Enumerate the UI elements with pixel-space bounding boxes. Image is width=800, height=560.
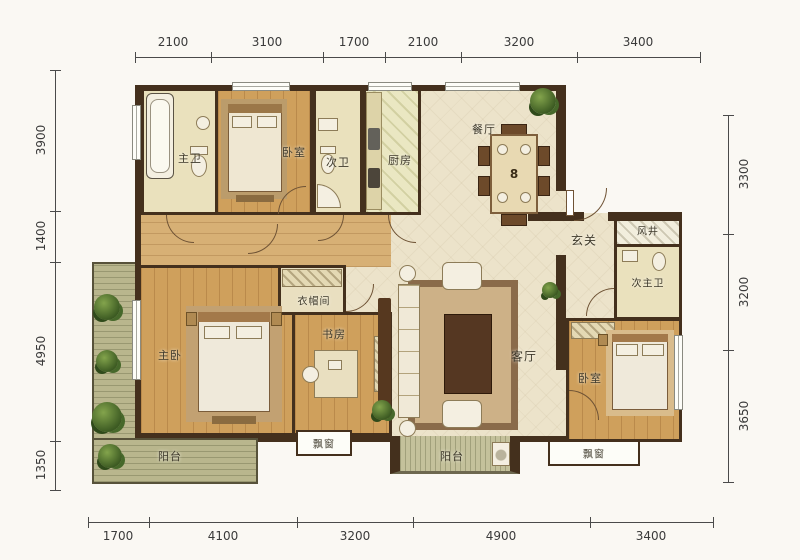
dim-tick <box>713 517 714 528</box>
room-label-master-bath: 主卫 <box>178 150 202 166</box>
dim-tick <box>50 70 61 71</box>
room-label-foyer: 玄关 <box>571 232 597 249</box>
dim-tick <box>211 52 212 63</box>
kitchen-counter <box>366 92 382 210</box>
coffee-table-icon <box>444 314 492 394</box>
room-label-bay-window-right: 飘窗 <box>583 446 605 461</box>
stove-icon <box>368 168 380 188</box>
plant-icon <box>530 88 556 114</box>
wall-living-right <box>556 255 566 370</box>
dim-tick <box>723 350 734 351</box>
dining-seat-count: 8 <box>510 167 518 181</box>
dim-label: 4900 <box>486 529 517 543</box>
wall-shaft-top <box>608 212 682 221</box>
pillow-icon <box>204 326 230 339</box>
bathtub-inner <box>150 99 170 173</box>
dim-bottom-line <box>88 522 713 523</box>
nightstand-icon <box>598 334 608 346</box>
room-label-bay-window-left: 飘窗 <box>313 436 335 451</box>
dim-tick <box>149 517 150 528</box>
entry-door-leaf <box>566 190 574 216</box>
plant-icon <box>96 350 118 372</box>
room-label-master-bedroom: 主卧 <box>158 347 182 363</box>
chair-icon <box>501 214 527 226</box>
desk-chair-icon <box>302 366 319 383</box>
dim-tick <box>413 517 414 528</box>
room-label-kitchen: 厨房 <box>388 152 412 168</box>
room-label-cloakroom: 衣帽间 <box>298 293 331 308</box>
bed-headboard <box>228 104 282 113</box>
dim-tick <box>723 234 734 235</box>
desk-icon <box>314 350 358 398</box>
bed-headboard <box>198 312 270 322</box>
side-table-icon <box>399 420 416 437</box>
window-icon <box>132 105 141 160</box>
dim-tick <box>723 482 734 483</box>
dim-tick <box>50 441 61 442</box>
room-label-dining: 餐厅 <box>472 121 496 137</box>
room-label-study: 书房 <box>322 326 346 342</box>
dim-label: 3200 <box>340 529 371 543</box>
washer-icon <box>492 442 510 466</box>
dim-tick <box>723 115 734 116</box>
dim-tick <box>135 52 136 63</box>
chair-icon <box>478 176 490 196</box>
pillow-icon <box>236 326 262 339</box>
plant-icon <box>372 400 392 420</box>
window-icon <box>368 82 412 91</box>
room-label-living: 客厅 <box>511 348 537 365</box>
window-icon <box>674 335 683 410</box>
dim-label: 4950 <box>34 336 48 367</box>
nightstand-icon <box>271 312 282 326</box>
dim-tick <box>50 262 61 263</box>
plate-icon <box>520 144 531 155</box>
room-label-air-shaft: 风井 <box>637 223 659 238</box>
pillow-icon <box>616 344 638 356</box>
dim-label: 1350 <box>34 450 48 481</box>
dim-label: 3400 <box>636 529 667 543</box>
sink-icon <box>318 118 338 131</box>
dim-label: 3650 <box>737 401 751 432</box>
pillow-icon <box>642 344 664 356</box>
window-icon <box>132 300 141 380</box>
laptop-icon <box>328 360 342 370</box>
plant-icon <box>542 282 558 298</box>
toilet-tank-icon <box>320 146 336 154</box>
room-label-balcony-left: 阳台 <box>158 448 182 464</box>
plate-icon <box>497 192 508 203</box>
dim-tick <box>50 490 61 491</box>
dim-tick <box>88 517 89 528</box>
kitchen-sink-icon <box>368 128 380 150</box>
dim-label: 3200 <box>737 277 751 308</box>
side-table-icon <box>399 265 416 282</box>
plate-icon <box>497 144 508 155</box>
dim-tick <box>590 517 591 528</box>
dim-label: 3400 <box>623 35 654 49</box>
dim-label: 4100 <box>208 529 239 543</box>
dim-top-line <box>135 57 700 58</box>
room-label-second-bath: 次卫 <box>326 154 350 170</box>
toilet-icon <box>652 252 666 271</box>
sink-icon <box>196 116 210 130</box>
dim-label: 3300 <box>737 159 751 190</box>
window-icon <box>232 82 290 91</box>
dim-label: 1700 <box>339 35 370 49</box>
plant-icon <box>92 402 122 432</box>
room-label-bedroom-right: 卧室 <box>578 370 602 386</box>
chair-icon <box>538 176 550 196</box>
floorplan-canvas: 2100 3100 1700 2100 3200 3400 1700 4100 … <box>0 0 800 560</box>
plate-icon <box>520 192 531 203</box>
plant-icon <box>98 444 122 468</box>
dim-tick <box>700 52 701 63</box>
dim-label: 1700 <box>103 529 134 543</box>
window-icon <box>445 82 520 91</box>
dim-label: 2100 <box>408 35 439 49</box>
armchair-icon <box>442 262 482 290</box>
sofa-icon <box>398 284 420 418</box>
armchair-icon <box>442 400 482 428</box>
room-label-balcony-mid: 阳台 <box>440 448 464 464</box>
nightstand-icon <box>186 312 197 326</box>
sink-icon <box>622 250 638 262</box>
dim-right-line <box>728 115 729 482</box>
chair-icon <box>538 146 550 166</box>
dim-tick <box>385 52 386 63</box>
dim-tick <box>577 52 578 63</box>
wall-dining-right <box>556 85 566 191</box>
dim-tick <box>323 52 324 63</box>
room-label-second-master-bath: 次主卫 <box>632 275 665 290</box>
dim-left-line <box>55 70 56 490</box>
dim-tick <box>50 211 61 212</box>
pillow-icon <box>232 116 252 128</box>
plant-icon <box>94 294 120 320</box>
dim-label: 2100 <box>158 35 189 49</box>
dim-label: 3200 <box>504 35 535 49</box>
dim-tick <box>461 52 462 63</box>
dim-label: 3100 <box>252 35 283 49</box>
wardrobe-icon <box>282 269 342 287</box>
pillow-icon <box>257 116 277 128</box>
room-label-bedroom-top: 卧室 <box>282 144 306 160</box>
bed-headboard <box>612 334 668 342</box>
chair-icon <box>478 146 490 166</box>
bed-bench <box>212 416 256 424</box>
bed-bench <box>236 195 274 202</box>
dim-tick <box>297 517 298 528</box>
dim-label: 3900 <box>34 125 48 156</box>
dim-label: 1400 <box>34 221 48 252</box>
